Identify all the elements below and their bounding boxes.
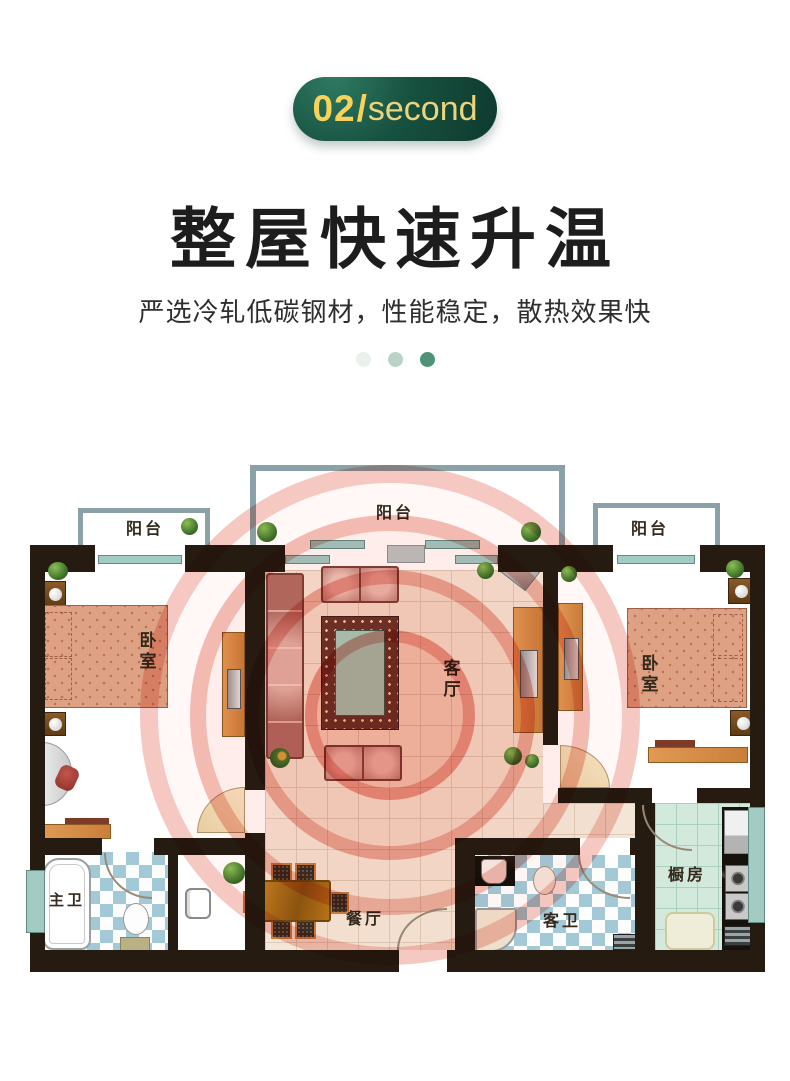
wall: [154, 838, 245, 855]
section-number-badge: 02/second: [293, 77, 497, 141]
fridge: [724, 810, 751, 854]
washer: [185, 888, 211, 919]
dining-table: [261, 880, 331, 922]
window-sill: [425, 540, 480, 549]
wall: [30, 950, 765, 972]
room-label-bedroom-left: 卧室: [138, 630, 158, 673]
dining-chair: [271, 920, 292, 939]
badge-word: second: [368, 90, 478, 129]
sofa-bottom: [324, 745, 402, 781]
room-label-guest-bath: 客卫: [530, 912, 594, 931]
desk-right-bedroom: [648, 747, 748, 763]
tv-cabinet-living: [513, 607, 543, 733]
guest-toilet: [533, 866, 556, 895]
shelf-left-bedroom: [41, 824, 111, 839]
plant: [48, 562, 68, 580]
wall: [30, 838, 102, 855]
wall: [593, 545, 613, 572]
pagination-dots: [0, 352, 790, 367]
vent-grille: [724, 926, 751, 946]
plant: [726, 560, 744, 578]
tv-cabinet-bedroom: [558, 603, 583, 711]
plant: [521, 522, 541, 542]
plant: [223, 862, 245, 884]
pillow: [713, 658, 743, 702]
window-kitchen: [748, 807, 765, 923]
toilet: [123, 903, 149, 935]
plant: [257, 522, 277, 542]
wall: [558, 788, 652, 803]
promo-section: 02/second 整屋快速升温 严选冷轧低碳钢材，性能稳定，散热效果快: [0, 0, 790, 1081]
wall: [750, 545, 765, 807]
window-sill: [98, 555, 182, 564]
sofa-long: [266, 573, 304, 759]
room-label-master-bath: 主卫: [37, 892, 97, 910]
wall: [30, 545, 45, 870]
wall: [697, 788, 750, 803]
badge-number: 02: [312, 88, 355, 130]
room-label-balcony-right: 阳台: [615, 520, 685, 539]
dot-1: [356, 352, 371, 367]
wall: [498, 545, 593, 572]
room-label-dining: 餐厅: [335, 910, 395, 929]
badge-slash: /: [357, 88, 367, 130]
guest-sink: [481, 859, 507, 884]
plant: [561, 566, 577, 582]
plant: [181, 518, 198, 535]
plant: [504, 747, 522, 765]
wall: [543, 570, 558, 745]
room-label-balcony-left: 阳台: [110, 520, 180, 539]
plant: [477, 562, 494, 579]
rug: [321, 616, 399, 730]
wall: [168, 855, 178, 950]
plant-flower: [270, 748, 290, 768]
window-sill: [455, 555, 498, 564]
wall: [455, 838, 580, 855]
page-subtitle: 严选冷轧低碳钢材，性能稳定，散热效果快: [0, 292, 790, 329]
wall: [245, 833, 265, 950]
entry-door-gap: [399, 950, 447, 972]
coffee-table: [335, 630, 385, 716]
window-sill: [310, 540, 365, 549]
pillow: [45, 612, 72, 657]
window-sill: [617, 555, 695, 564]
wall: [245, 570, 265, 790]
window-sill: [285, 555, 330, 564]
room-label-balcony-middle: 阳台: [360, 504, 430, 523]
sofa-top: [321, 566, 399, 603]
balcony-step: [387, 545, 425, 563]
page-title: 整屋快速升温: [0, 186, 790, 282]
dining-chair: [295, 920, 316, 939]
floorplan: 阳台 阳台 阳台 卧室 客厅 卧室 餐厅 主卫 客卫 橱房: [25, 460, 765, 1025]
nightstand: [728, 578, 752, 604]
dot-3: [420, 352, 435, 367]
dresser-left-bedroom: [222, 632, 245, 737]
pillow: [713, 614, 743, 656]
dot-2: [388, 352, 403, 367]
kitchen-mat: [665, 912, 715, 950]
wall: [455, 855, 475, 950]
plant: [525, 754, 539, 768]
room-label-living: 客厅: [442, 658, 462, 701]
corridor-floor: [543, 803, 635, 838]
room-label-kitchen: 橱房: [655, 866, 719, 885]
pillow: [45, 658, 72, 700]
room-label-bedroom-right: 卧室: [640, 653, 660, 696]
wall: [185, 545, 285, 572]
